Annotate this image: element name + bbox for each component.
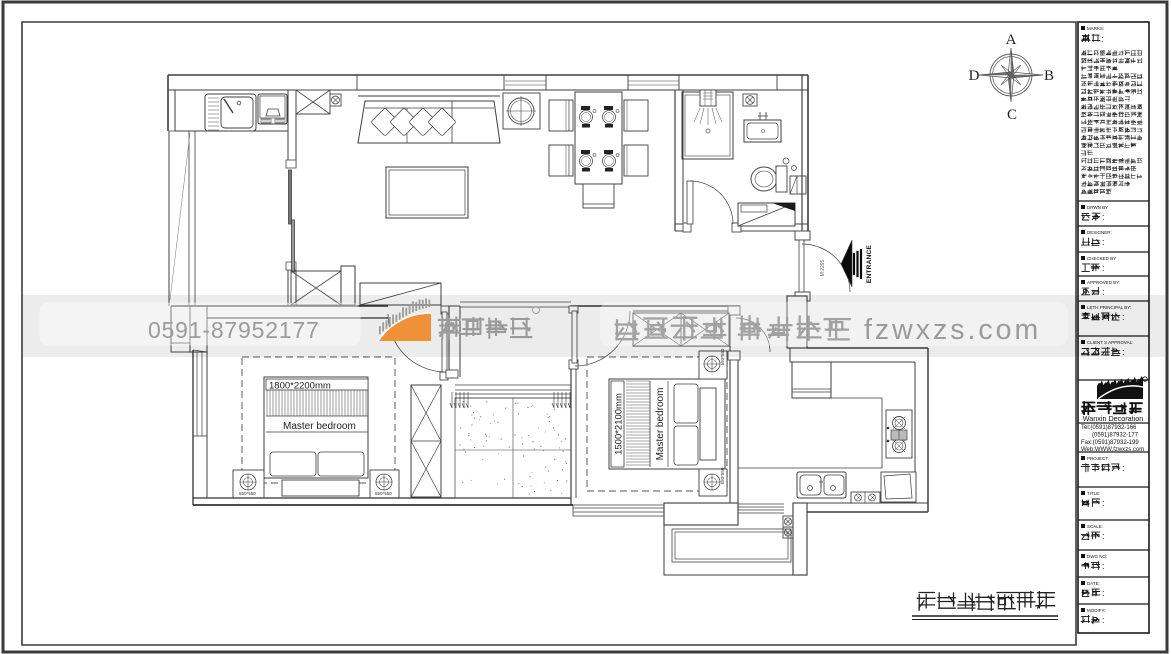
svg-text:ENTRANCE: ENTRANCE (866, 244, 873, 283)
svg-text::: : (1102, 212, 1105, 222)
svg-text:DATE:: DATE: (1087, 581, 1100, 586)
svg-text:Master bedroom: Master bedroom (655, 388, 666, 461)
svg-text:PROJECT:: PROJECT: (1087, 456, 1109, 461)
svg-text:M:2295: M:2295 (820, 259, 826, 276)
svg-text:550*550: 550*550 (720, 467, 725, 484)
svg-text:0591-87952177: 0591-87952177 (148, 317, 320, 343)
svg-text::: : (1102, 237, 1105, 247)
svg-text:CHECKED BY: CHECKED BY (1087, 256, 1116, 261)
svg-text:APPROVED BY:: APPROVED BY: (1087, 280, 1120, 285)
svg-text::: : (1102, 531, 1105, 541)
svg-text:Wanxin Decoration: Wanxin Decoration (1083, 414, 1143, 423)
svg-text:Tel:(0591)87932-166: Tel:(0591)87932-166 (1081, 425, 1137, 431)
svg-text:(0591)87932-177: (0591)87932-177 (1092, 433, 1139, 439)
svg-text:MARKS:: MARKS: (1087, 26, 1104, 31)
svg-text:DESIGNER:: DESIGNER: (1087, 230, 1112, 235)
svg-text:1800*2200mm: 1800*2200mm (269, 381, 331, 392)
svg-text::: : (1102, 588, 1105, 598)
svg-text::: : (1102, 615, 1105, 625)
svg-text:TITLE:: TITLE: (1087, 491, 1101, 496)
svg-text:A: A (1006, 32, 1017, 48)
svg-text::: : (1101, 34, 1104, 44)
svg-text:MODIFY:: MODIFY: (1087, 608, 1106, 613)
svg-text:fzwxzs.com: fzwxzs.com (864, 314, 1041, 346)
svg-text:1500*2100mm: 1500*2100mm (614, 393, 625, 455)
svg-text:D: D (969, 68, 980, 84)
svg-text:550*550: 550*550 (239, 491, 256, 496)
svg-text::: : (1102, 498, 1105, 508)
svg-text:Fax:(0591)87932-199: Fax:(0591)87932-199 (1081, 440, 1139, 446)
svg-text:Web:WWW.fzwxzs.com: Web:WWW.fzwxzs.com (1081, 447, 1144, 453)
svg-text:550*550: 550*550 (375, 491, 392, 496)
svg-text::: : (1102, 263, 1105, 273)
svg-text:DRWN BY: DRWN BY (1087, 205, 1108, 210)
svg-text:C: C (1007, 107, 1017, 123)
svg-text:B: B (1044, 68, 1054, 84)
svg-text:Master bedroom: Master bedroom (283, 421, 356, 432)
svg-text::: : (1122, 463, 1125, 473)
svg-text:SCALE:: SCALE: (1087, 524, 1103, 529)
svg-text::: : (1102, 561, 1105, 571)
svg-text:DWG NO:: DWG NO: (1087, 554, 1107, 559)
